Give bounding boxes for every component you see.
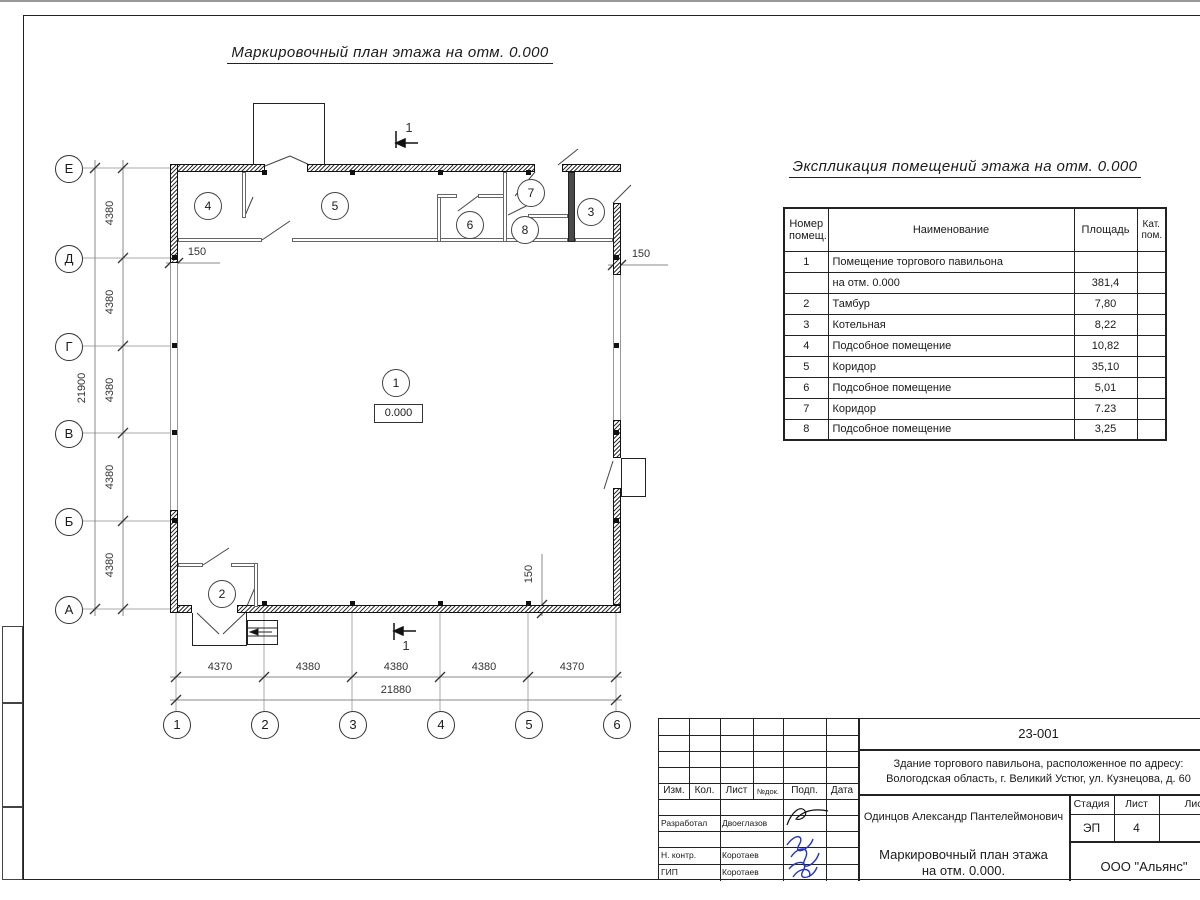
room-marker-7: 7	[517, 179, 545, 207]
column-marker	[526, 170, 531, 175]
exterior-wall	[307, 164, 535, 172]
tb-role: Разработал	[661, 818, 721, 828]
room-name-cell: Коридор	[828, 356, 1074, 377]
section-mark-label: 1	[399, 120, 419, 135]
room-name-cell: Подсобное помещение	[828, 377, 1074, 398]
room-name-cell: Помещение торгового павильона	[828, 251, 1074, 272]
room-area-cell: 3,25	[1074, 419, 1137, 440]
col-header-area: Площадь	[1074, 208, 1137, 251]
column-marker	[614, 343, 619, 348]
explication-table: Номер помещ. Наименование Площадь Кат. п…	[783, 207, 1167, 441]
entrance-porch	[192, 613, 247, 646]
room-name-cell: Подсобное помещение	[828, 335, 1074, 356]
project-name: Здание торгового павильона, расположенно…	[863, 757, 1200, 787]
tb-col-ndok: №док.	[753, 787, 783, 796]
column-marker	[172, 255, 177, 260]
exterior-wall	[562, 164, 621, 172]
tb-col-podp: Подп.	[783, 785, 826, 796]
room-number-cell	[784, 272, 828, 293]
room-number-cell: 7	[784, 398, 828, 419]
stage-header: Стадия	[1069, 798, 1114, 810]
sheet-title: Маркировочный план этажа на отм. 0.000.	[858, 847, 1069, 879]
top-porch	[253, 103, 325, 165]
room-name-cell: Подсобное помещение	[828, 419, 1074, 440]
dim-label: 4370	[542, 661, 602, 673]
tb-col-izm: Изм.	[659, 785, 689, 796]
partition	[242, 172, 246, 218]
exterior-wall	[170, 164, 178, 263]
room-cat-cell	[1137, 251, 1166, 272]
dim-label: 4380	[104, 370, 120, 410]
room-area-cell: 8,22	[1074, 314, 1137, 335]
exterior-wall	[613, 488, 621, 605]
room-area-cell: 35,10	[1074, 356, 1137, 377]
side-exit-landing	[621, 458, 646, 497]
tb-col-data: Дата	[826, 785, 858, 796]
col-header-name: Наименование	[828, 208, 1074, 251]
tb-role: Н. контр.	[661, 850, 721, 860]
axis-col-5: 5	[515, 711, 543, 739]
column-marker	[614, 518, 619, 523]
tb-col-kol: Кол.	[689, 785, 720, 796]
table-row: 6 Подсобное помещение 5,01	[784, 377, 1166, 398]
exterior-wall	[613, 203, 621, 275]
dim-label: 4380	[278, 661, 338, 673]
tb-name: Двоеглазов	[722, 818, 782, 828]
room-cat-cell	[1137, 398, 1166, 419]
partition	[437, 196, 441, 242]
partition	[437, 194, 457, 198]
entrance-steps	[247, 620, 278, 645]
tb-name: Коротаев	[722, 867, 782, 877]
column-marker	[438, 601, 443, 606]
dim-label: 4380	[104, 193, 120, 233]
dim-label: 4370	[190, 661, 250, 673]
axis-col-2: 2	[251, 711, 279, 739]
client-name: Одинцов Александр Пантелеймонович	[858, 811, 1069, 823]
room-marker-1: 1	[382, 369, 410, 397]
dim-label: 4380	[104, 545, 120, 585]
table-row: 8 Подсобное помещение 3,25	[784, 419, 1166, 440]
signature-blue	[779, 831, 833, 881]
tb-name: Коротаев	[722, 850, 782, 860]
room-name-cell: на отм. 0.000	[828, 272, 1074, 293]
room-area-cell	[1074, 251, 1137, 272]
partition	[254, 563, 258, 607]
col-header-cat: Кат. пом.	[1137, 208, 1166, 251]
room-cat-cell	[1137, 419, 1166, 440]
room-cat-cell	[1137, 335, 1166, 356]
exterior-wall-light	[170, 263, 178, 510]
room-marker-3: 3	[577, 198, 605, 226]
tb-role: ГИП	[661, 867, 721, 877]
level-mark: 0.000	[374, 404, 423, 423]
room-cat-cell	[1137, 356, 1166, 377]
wall-dim-label: 150	[626, 248, 656, 260]
room-name-cell: Котельная	[828, 314, 1074, 335]
room-number-cell: 4	[784, 335, 828, 356]
table-row: 7 Коридор 7.23	[784, 398, 1166, 419]
exterior-wall	[170, 164, 265, 172]
drawing-sheet: Маркировочный план этажа на отм. 0.000	[0, 0, 1200, 900]
room-cat-cell	[1137, 377, 1166, 398]
explication-title-text: Экспликация помещений этажа на отм. 0.00…	[789, 158, 1142, 178]
column-marker	[614, 255, 619, 260]
explication-title: Экспликация помещений этажа на отм. 0.00…	[770, 158, 1160, 178]
sheet-header: Лист	[1114, 798, 1159, 810]
wall-dim-label: 150	[523, 554, 539, 594]
col-header-number: Номер помещ.	[784, 208, 828, 251]
tb-col-list: Лист	[720, 785, 753, 796]
room-area-cell: 7.23	[1074, 398, 1137, 419]
table-row: 3 Котельная 8,22	[784, 314, 1166, 335]
table-row: 5 Коридор 35,10	[784, 356, 1166, 377]
table-row: на отм. 0.000 381,4	[784, 272, 1166, 293]
table-row: 4 Подсобное помещение 10,82	[784, 335, 1166, 356]
room-area-cell: 381,4	[1074, 272, 1137, 293]
axis-row-g: Г	[55, 333, 83, 361]
room-name-cell: Коридор	[828, 398, 1074, 419]
doc-number: 23-001	[858, 726, 1200, 741]
column-marker	[350, 601, 355, 606]
axis-row-d: Д	[55, 245, 83, 273]
column-marker	[438, 170, 443, 175]
exterior-wall	[613, 420, 621, 458]
dim-label: 4380	[454, 661, 514, 673]
room-marker-2: 2	[208, 580, 236, 608]
room-name-cell: Тамбур	[828, 293, 1074, 314]
room-number-cell: 1	[784, 251, 828, 272]
boiler-room-wall	[568, 172, 575, 242]
partition	[503, 172, 507, 242]
room-number-cell: 6	[784, 377, 828, 398]
dim-total-label: 21880	[346, 684, 446, 696]
room-cat-cell	[1137, 272, 1166, 293]
room-number-cell: 8	[784, 419, 828, 440]
exterior-wall	[237, 605, 621, 613]
column-marker	[172, 343, 177, 348]
table-row: 1 Помещение торгового павильона	[784, 251, 1166, 272]
room-number-cell: 5	[784, 356, 828, 377]
axis-col-3: 3	[339, 711, 367, 739]
axis-col-1: 1	[163, 711, 191, 739]
dim-total-label: 21900	[76, 358, 92, 418]
column-marker	[172, 430, 177, 435]
column-marker	[262, 601, 267, 606]
stage-value: ЭП	[1069, 821, 1114, 835]
room-number-cell: 3	[784, 314, 828, 335]
column-marker	[172, 518, 177, 523]
partition	[528, 214, 568, 218]
dim-label: 4380	[104, 282, 120, 322]
room-cat-cell	[1137, 293, 1166, 314]
room-marker-4: 4	[194, 192, 222, 220]
column-marker	[350, 170, 355, 175]
dim-label: 4380	[366, 661, 426, 673]
table-row: 2 Тамбур 7,80	[784, 293, 1166, 314]
room-area-cell: 10,82	[1074, 335, 1137, 356]
room-marker-6: 6	[456, 211, 484, 239]
organization-name: ООО "Альянс"	[1069, 859, 1200, 874]
column-marker	[262, 170, 267, 175]
dim-label: 4380	[104, 457, 120, 497]
column-marker	[526, 601, 531, 606]
title-block: Изм. Кол. Лист №док. Подп. Дата Разработ…	[658, 718, 1200, 880]
exterior-wall	[170, 510, 178, 613]
axis-col-6: 6	[603, 711, 631, 739]
partition	[178, 563, 203, 567]
room-marker-5: 5	[321, 192, 349, 220]
axis-col-4: 4	[427, 711, 455, 739]
sheet-number: 4	[1114, 821, 1159, 835]
partition	[178, 238, 262, 242]
sheets-header: Листов	[1159, 798, 1200, 810]
axis-row-b: Б	[55, 508, 83, 536]
axis-row-a: А	[55, 596, 83, 624]
signature-black	[783, 803, 831, 833]
room-marker-8: 8	[511, 216, 539, 244]
room-cat-cell	[1137, 314, 1166, 335]
column-marker	[614, 430, 619, 435]
section-mark-label: 1	[396, 638, 416, 653]
partition	[575, 238, 613, 242]
axis-row-e: Е	[55, 155, 83, 183]
room-area-cell: 5,01	[1074, 377, 1137, 398]
room-area-cell: 7,80	[1074, 293, 1137, 314]
wall-dim-label: 150	[182, 246, 212, 258]
axis-row-v: В	[55, 420, 83, 448]
room-number-cell: 2	[784, 293, 828, 314]
